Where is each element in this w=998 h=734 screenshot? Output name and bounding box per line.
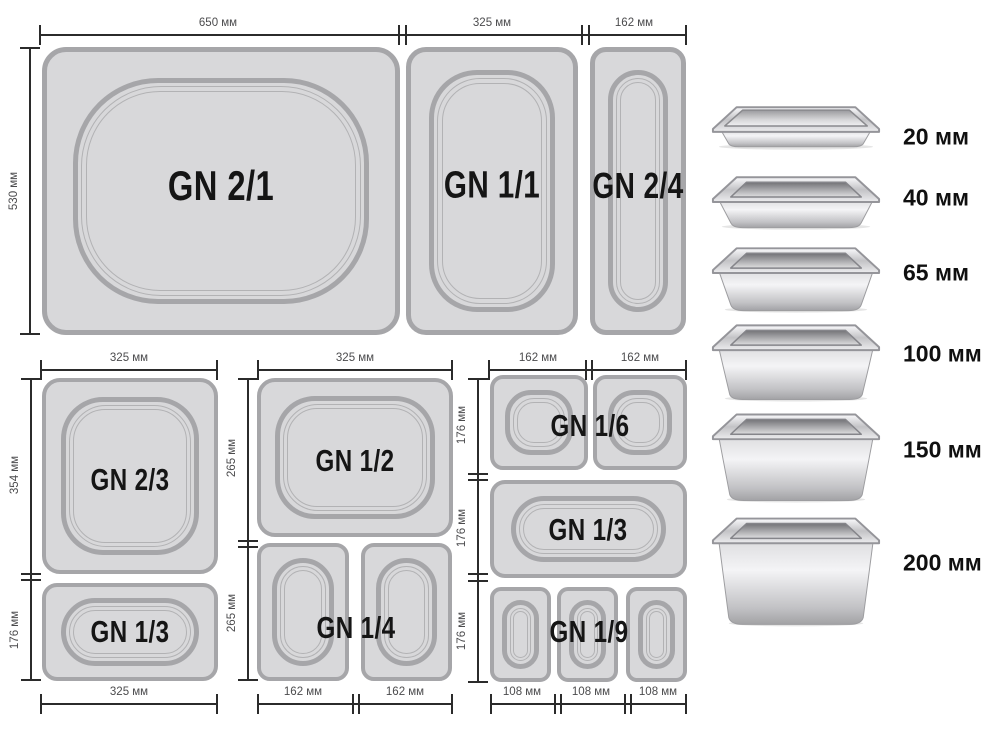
dim-tick	[560, 694, 562, 714]
dim-label-265-upper: 265 мм	[226, 439, 238, 477]
dim-tick	[588, 25, 590, 45]
dim-tick	[581, 25, 583, 45]
dim-tick	[238, 540, 258, 542]
dim-label-176-bottom: 176 мм	[456, 612, 468, 650]
gn-1-9-outline-c	[626, 587, 687, 682]
pan-photo-150mm	[707, 407, 885, 503]
depth-label-20: 20 мм	[903, 124, 969, 151]
depth-label-100: 100 мм	[903, 341, 982, 368]
dim-label-325-bottom: 325 мм	[110, 686, 148, 698]
dim-tick	[398, 25, 400, 45]
dim-tick	[21, 579, 41, 581]
dim-line-left-top: 325 мм	[40, 369, 218, 371]
dim-tick	[468, 479, 488, 481]
dim-label-162-a: 162 мм	[284, 686, 322, 698]
dim-line-mid-bottom: 162 мм 162 мм	[257, 703, 453, 705]
pan-photo-65mm	[707, 241, 885, 313]
dim-tick	[468, 473, 488, 475]
dim-label-176-middle: 176 мм	[456, 509, 468, 547]
dim-tick	[21, 573, 41, 575]
dim-label-162-right-a: 162 мм	[519, 352, 557, 364]
depth-label-40: 40 мм	[903, 185, 969, 212]
pan-photo-40mm	[707, 170, 885, 230]
dim-tick	[468, 580, 488, 582]
gn-1-3-right-label: GN 1/3	[549, 512, 628, 548]
dim-line-right-heights: 176 мм 176 мм 176 мм	[477, 378, 479, 683]
dim-line-mid-heights: 265 мм 265 мм	[247, 378, 249, 681]
dim-label-176: 176 мм	[9, 611, 21, 649]
dim-tick	[352, 694, 354, 714]
dim-label-176-top: 176 мм	[456, 406, 468, 444]
dim-label-325: 325 мм	[473, 17, 511, 29]
gn-1-1-label: GN 1/1	[444, 165, 540, 208]
dim-tick	[630, 694, 632, 714]
depth-label-200: 200 мм	[903, 550, 982, 577]
dim-label-530: 530 мм	[8, 172, 20, 210]
dim-tick	[405, 25, 407, 45]
dim-tick	[624, 694, 626, 714]
pan-photo-100mm	[707, 318, 885, 402]
dim-label-162-b: 162 мм	[386, 686, 424, 698]
gn-2-3-label: GN 2/3	[91, 462, 170, 498]
dim-label-108-b: 108 мм	[572, 686, 610, 698]
depth-label-65: 65 мм	[903, 260, 969, 287]
dim-label-354: 354 мм	[9, 456, 21, 494]
dim-line-mid-top: 325 мм	[257, 369, 453, 371]
dim-label-325-mid: 325 мм	[336, 352, 374, 364]
pan-contour	[513, 611, 528, 658]
dim-line-top-widths: 650 мм 325 мм 162 мм	[39, 34, 687, 36]
dim-label-325-top: 325 мм	[110, 352, 148, 364]
pan-contour	[649, 611, 664, 658]
dim-label-162: 162 мм	[615, 17, 653, 29]
dim-line-530-height: 530 мм	[29, 47, 31, 335]
dim-label-108-c: 108 мм	[639, 686, 677, 698]
dim-line-right-top: 162 мм 162 мм	[488, 369, 687, 371]
pan-photo-200mm	[707, 511, 885, 627]
dim-label-108-a: 108 мм	[503, 686, 541, 698]
dim-line-left-heights: 354 мм 176 мм	[30, 378, 32, 681]
dim-tick	[358, 694, 360, 714]
gn-1-4-label: GN 1/4	[317, 610, 396, 646]
gastronorm-sizes-infographic: 650 мм 325 мм 162 мм 530 мм GN 2/1 GN 1/…	[0, 0, 998, 734]
gn-1-6-label: GN 1/6	[551, 408, 630, 444]
dim-line-left-bottom: 325 мм	[40, 703, 218, 705]
depth-label-150: 150 мм	[903, 437, 982, 464]
dim-tick	[238, 546, 258, 548]
pan-rim	[502, 600, 539, 669]
dim-label-265-lower: 265 мм	[226, 594, 238, 632]
dim-tick	[554, 694, 556, 714]
gn-2-4-label: GN 2/4	[592, 165, 683, 207]
gn-1-3-left-label: GN 1/3	[91, 614, 170, 650]
gn-1-2-label: GN 1/2	[316, 443, 395, 479]
dim-tick	[591, 360, 593, 380]
dim-label-650: 650 мм	[199, 17, 237, 29]
gn-1-9-outline-a	[490, 587, 551, 682]
dim-tick	[468, 573, 488, 575]
pan-rim	[638, 600, 675, 669]
gn-2-1-label: GN 2/1	[168, 162, 274, 210]
pan-photo-20mm	[707, 100, 885, 150]
dim-tick	[585, 360, 587, 380]
dim-label-162-right-b: 162 мм	[621, 352, 659, 364]
dim-line-right-bottom: 108 мм 108 мм 108 мм	[490, 703, 687, 705]
gn-1-9-label: GN 1/9	[550, 614, 629, 650]
